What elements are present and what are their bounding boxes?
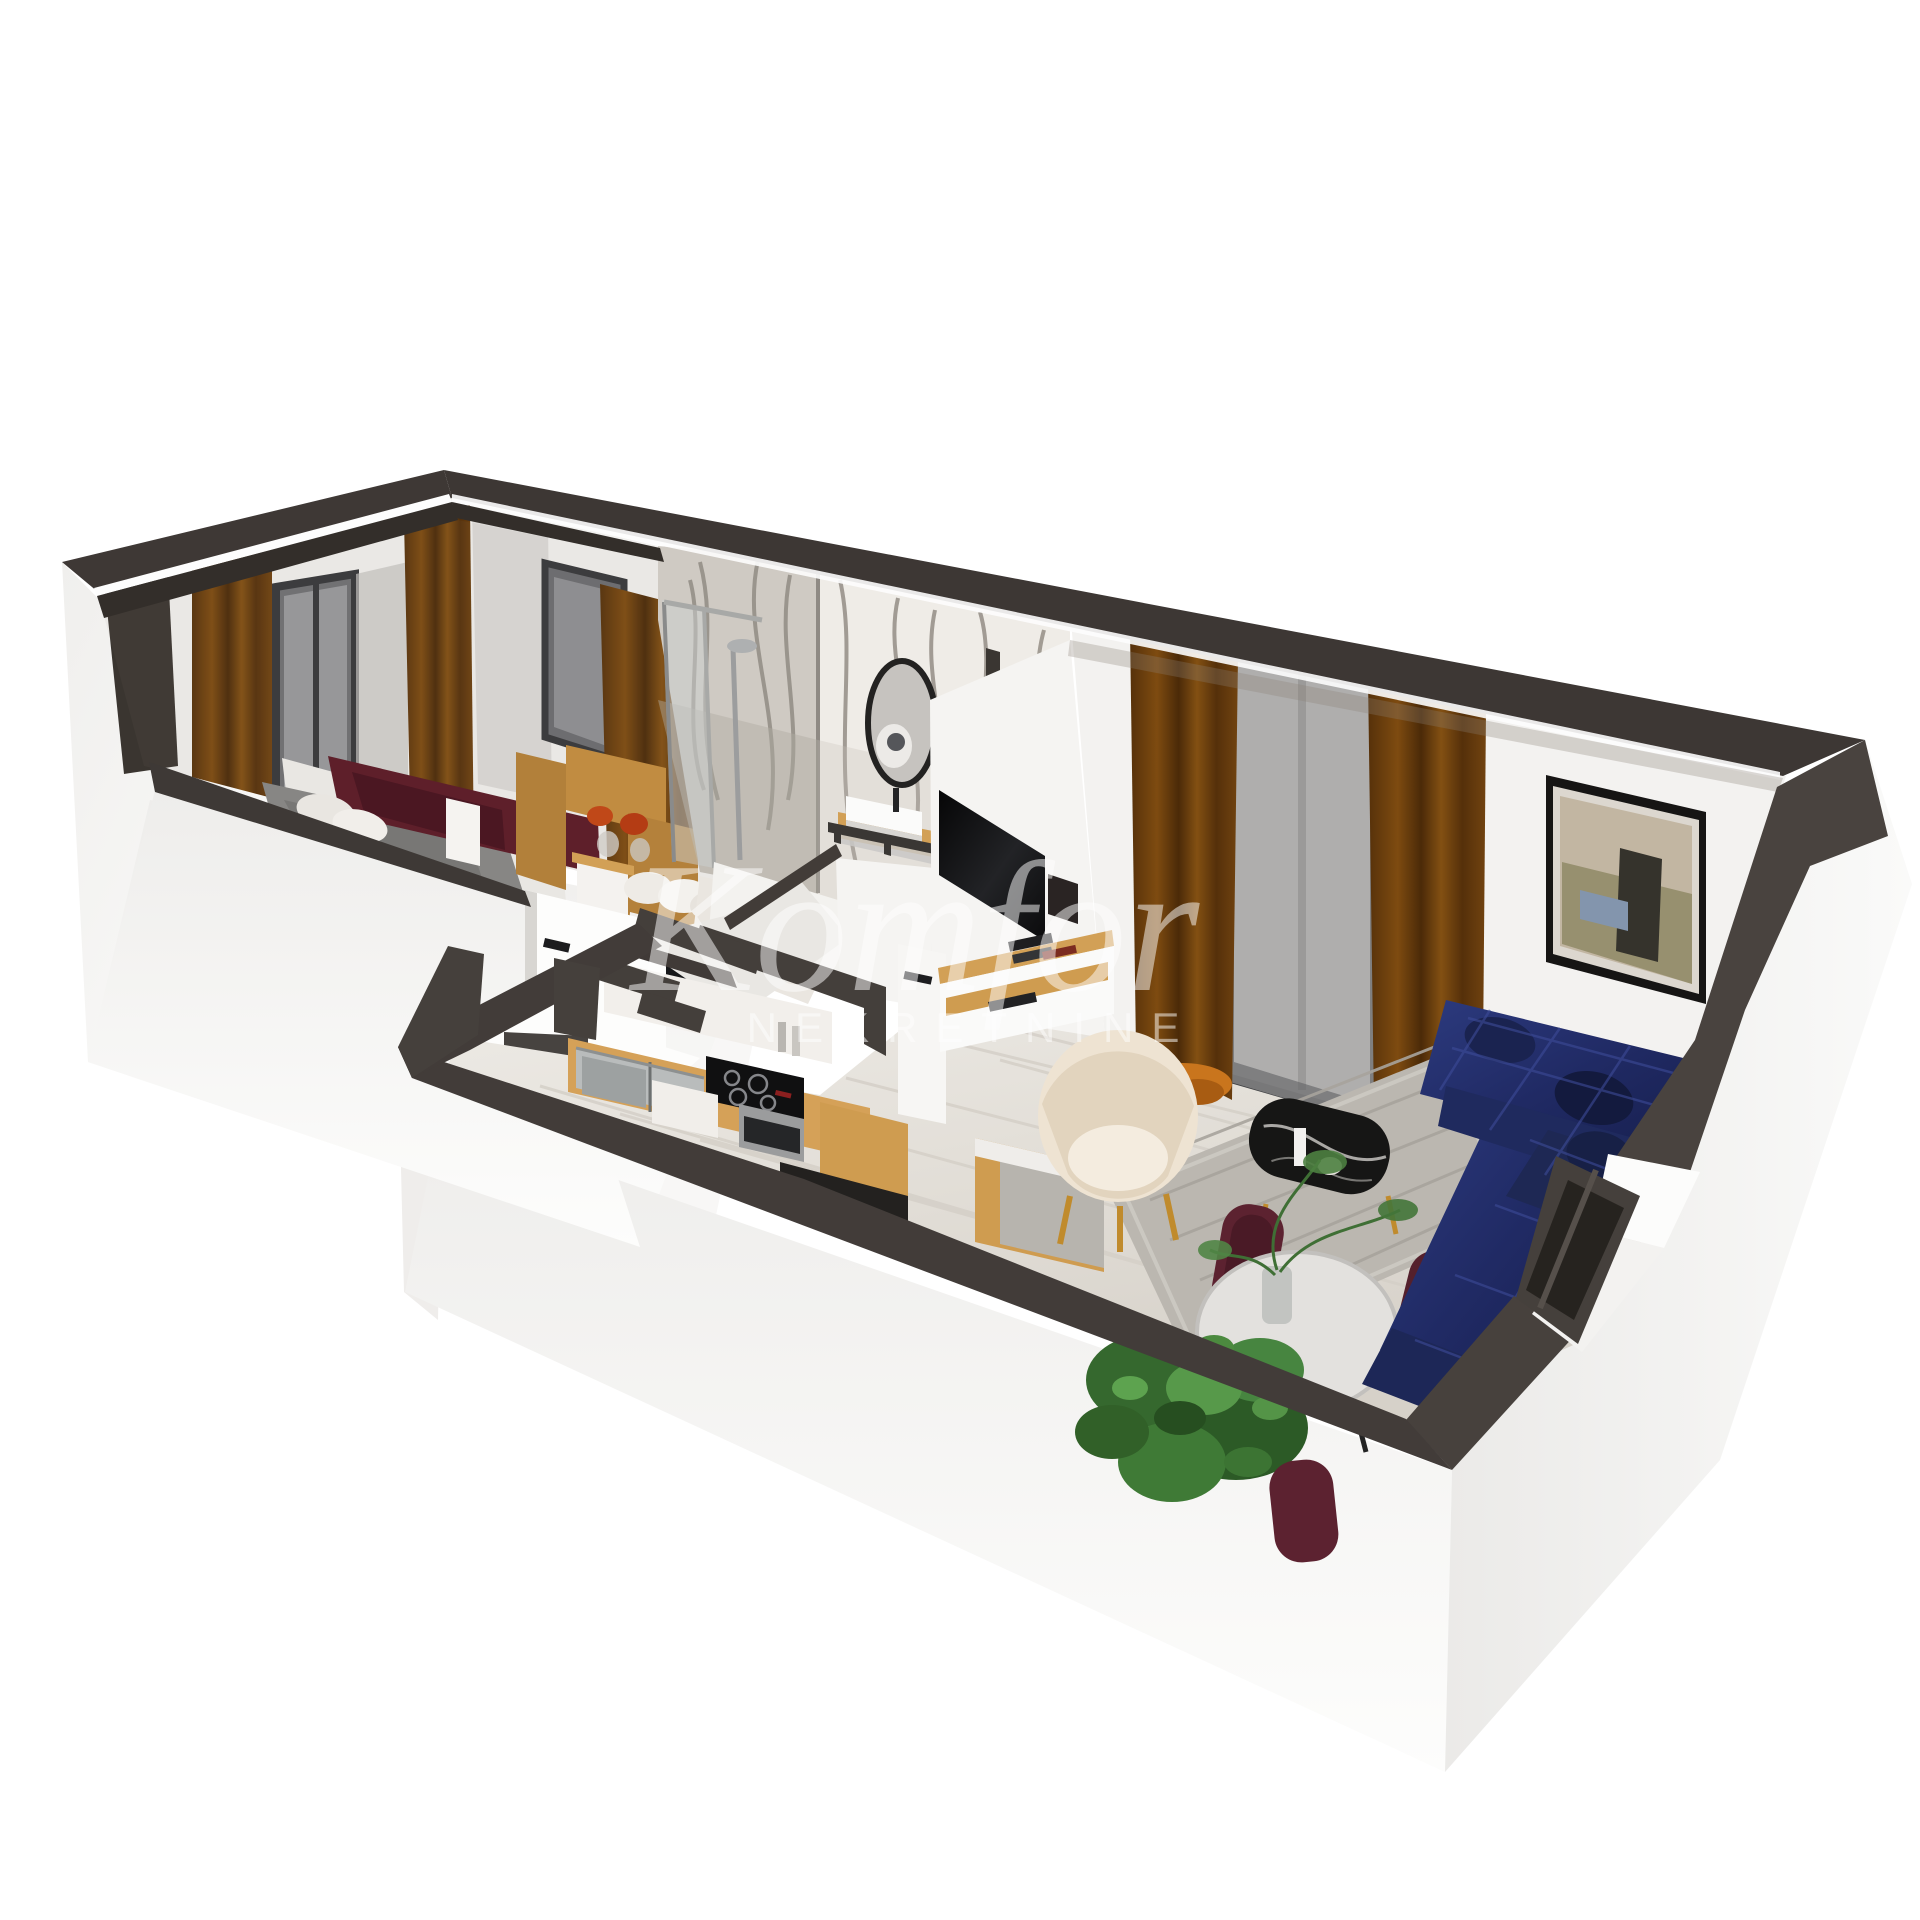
svg-text:Komfor: Komfor — [628, 825, 1200, 1031]
svg-text:NEKRETNINE: NEKRETNINE — [747, 1004, 1198, 1051]
